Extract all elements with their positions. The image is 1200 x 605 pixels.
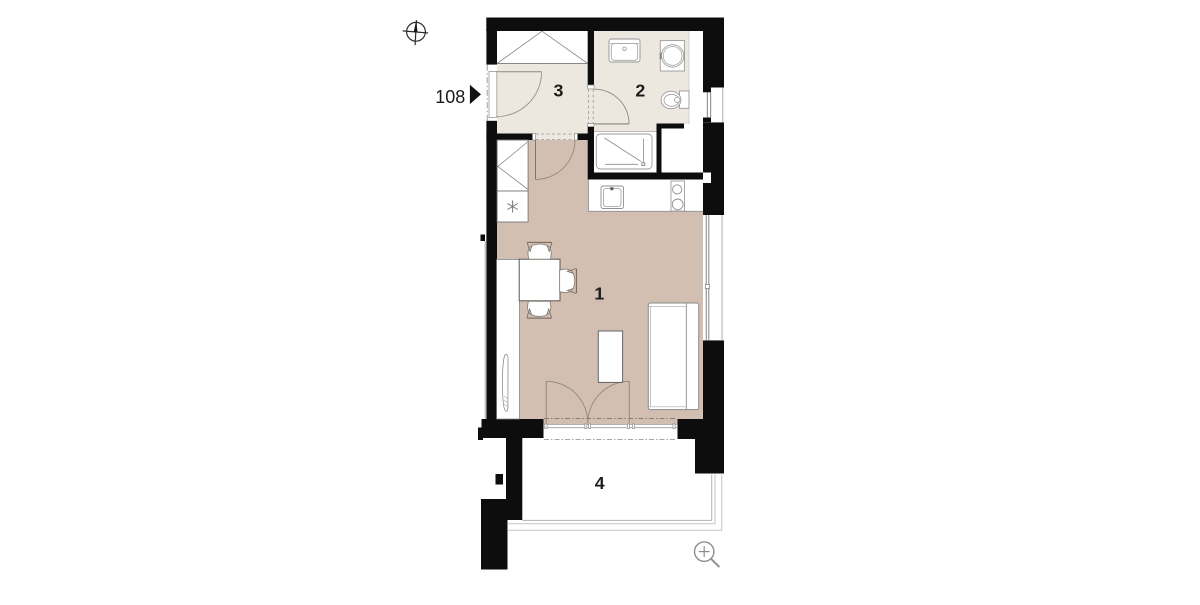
svg-text:4: 4 [595, 473, 605, 493]
svg-text:2: 2 [635, 80, 645, 100]
svg-text:3: 3 [554, 80, 564, 100]
svg-text:1: 1 [594, 284, 604, 304]
svg-text:108: 108 [435, 87, 465, 107]
